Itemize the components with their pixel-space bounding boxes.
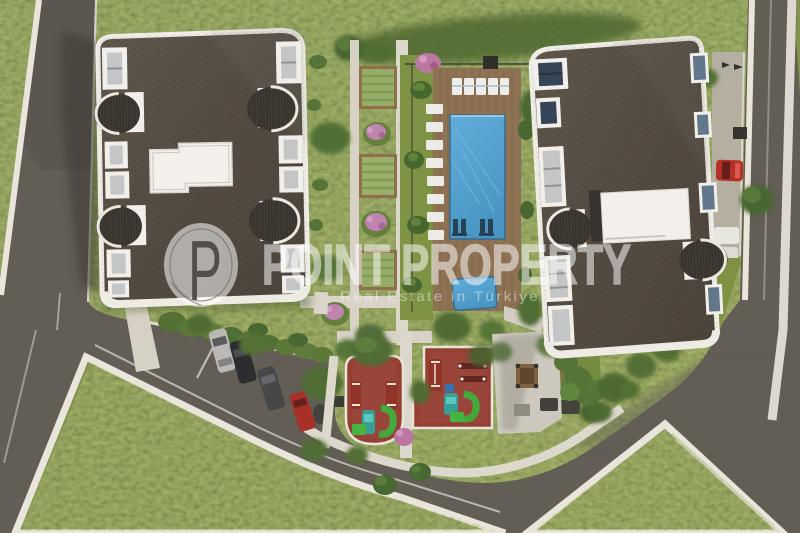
svg-text:P: P [188, 222, 222, 318]
svg-text:Real Estate in Türkiye: Real Estate in Türkiye [340, 289, 540, 304]
svg-text:POINT PROPERTY: POINT PROPERTY [262, 233, 631, 297]
